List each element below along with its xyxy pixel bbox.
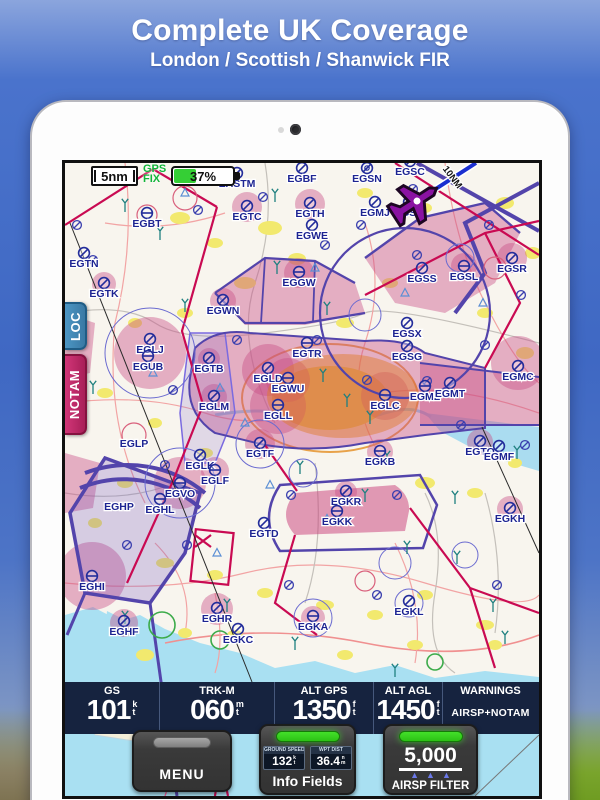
svg-text:EGKL: EGKL (394, 606, 424, 618)
svg-text:EGWE: EGWE (296, 230, 328, 242)
map-scale-label: 5nm (101, 169, 128, 184)
svg-text:EGGW: EGGW (282, 277, 315, 289)
background-grass-right (568, 710, 600, 800)
battery-nub (235, 172, 240, 180)
svg-text:EGLF: EGLF (201, 475, 230, 487)
tab-loc[interactable]: LOC (65, 302, 87, 350)
svg-text:EGVO: EGVO (165, 488, 195, 500)
svg-text:EGSX: EGSX (392, 328, 421, 340)
svg-text:EGTK: EGTK (89, 288, 119, 300)
svg-text:EGHF: EGHF (109, 626, 139, 638)
svg-text:EGBT: EGBT (132, 218, 162, 230)
front-camera-icon (290, 124, 301, 135)
battery-percent-label: 37% (173, 169, 233, 184)
svg-text:EGTD: EGTD (249, 528, 279, 540)
svg-text:EGTC: EGTC (232, 211, 262, 223)
warnings-value: AIRSP+NOTAM (451, 707, 529, 719)
menu-button-indicator (153, 737, 211, 748)
banner-subtitle: London / Scottish / Shanwick FIR (0, 50, 600, 72)
map-scale-indicator: 5nm (91, 166, 138, 186)
svg-text:EGSS: EGSS (407, 273, 436, 285)
airspace-filter-arrows-icon: ▲▲▲ (392, 771, 476, 779)
svg-text:EGWN: EGWN (207, 305, 240, 317)
app-store-screenshot: Complete UK Coverage London / Scottish /… (0, 0, 600, 800)
svg-text:EGKB: EGKB (365, 456, 396, 468)
ambient-sensor-icon (278, 127, 284, 133)
tablet-frame: EASTMEGBFEGSNEGSCEGMJEGSUEGBTEGTCEGTHEGW… (30, 100, 570, 800)
airport-eglp[interactable]: EGLP (120, 438, 149, 450)
svg-text:EGTR: EGTR (292, 348, 322, 360)
svg-text:EGSC: EGSC (395, 166, 425, 178)
svg-text:EGMF: EGMF (484, 451, 515, 463)
svg-text:EGMT: EGMT (435, 388, 466, 400)
svg-text:EGHL: EGHL (145, 504, 175, 516)
svg-text:EGMJ: EGMJ (360, 207, 390, 219)
info-cell-gs[interactable]: GS 101 kt (65, 682, 160, 734)
info-fields-button[interactable]: GROUND SPEED 132 kt WPT DIST 36.4 nm (259, 724, 356, 795)
background-grass-left (0, 710, 32, 800)
svg-text:EGTN: EGTN (69, 258, 98, 270)
svg-text:EGHR: EGHR (202, 613, 233, 625)
svg-text:EGSN: EGSN (352, 173, 382, 185)
svg-text:EGSR: EGSR (497, 263, 527, 275)
svg-text:EGLC: EGLC (370, 400, 400, 412)
svg-text:EGSL: EGSL (450, 271, 479, 283)
svg-text:EGKH: EGKH (495, 513, 525, 525)
airspace-filter-button[interactable]: 5,000 ▲▲▲ AIRSP FILTER (383, 724, 478, 795)
svg-text:EGSG: EGSG (392, 351, 422, 363)
banner: Complete UK Coverage London / Scottish /… (0, 0, 600, 72)
svg-text:EGHP: EGHP (104, 501, 134, 513)
svg-text:EGBF: EGBF (287, 173, 317, 185)
app-screen: EASTMEGBFEGSNEGSCEGMJEGSUEGBTEGTCEGTHEGW… (62, 160, 542, 799)
svg-text:EGWU: EGWU (272, 383, 305, 395)
airspace-filter-active-indicator (399, 731, 463, 742)
mini-display-wpt-dist: WPT DIST 36.4 nm (310, 746, 352, 770)
svg-text:EGHI: EGHI (79, 581, 105, 593)
airspace-filter-value: 5,000 (399, 744, 462, 771)
info-cell-trk[interactable]: TRK-M 060 mt (160, 682, 275, 734)
airport-eghp[interactable]: EGHP (104, 501, 134, 513)
tab-notam[interactable]: NOTAM (65, 354, 87, 435)
airport-egsc[interactable]: EGSC (395, 163, 425, 178)
svg-text:EGKK: EGKK (322, 516, 353, 528)
svg-text:EGKA: EGKA (298, 621, 329, 633)
svg-text:EGTH: EGTH (295, 208, 324, 220)
info-fields-active-indicator (276, 731, 340, 742)
mini-display-ground-speed: GROUND SPEED 132 kt (263, 746, 305, 770)
banner-title: Complete UK Coverage (0, 14, 600, 48)
battery-indicator: 37% (171, 166, 235, 186)
menu-button[interactable]: MENU (132, 730, 232, 792)
svg-text:EGMC: EGMC (502, 371, 534, 383)
svg-text:EGLL: EGLL (264, 410, 293, 422)
svg-text:EGLP: EGLP (120, 438, 149, 450)
gps-fix-status: GPS FIX (143, 164, 166, 184)
svg-text:EGUB: EGUB (133, 361, 164, 373)
svg-text:EGTF: EGTF (246, 448, 275, 460)
svg-text:EGLM: EGLM (199, 401, 230, 413)
svg-text:EGTB: EGTB (194, 363, 224, 375)
svg-text:EGKC: EGKC (223, 634, 254, 646)
map-london-urban (267, 354, 419, 438)
